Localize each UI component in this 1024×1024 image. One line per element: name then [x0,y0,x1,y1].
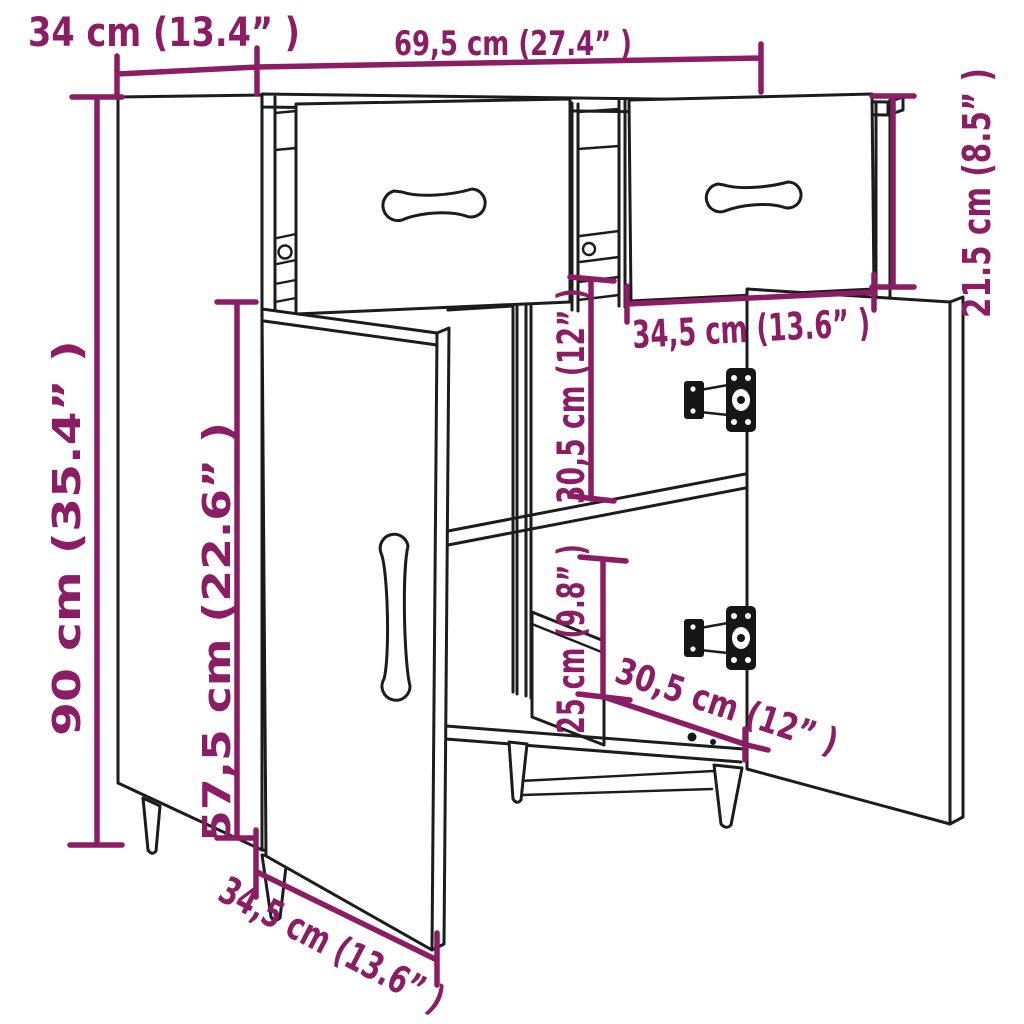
dim-label: 69,5 cm (27.4” ) [394,24,632,64]
dim-lower-compartment-height: 25 cm (9.8” ) [550,544,630,734]
furniture-dimension-diagram: 34 cm (13.4” ) 69,5 cm (27.4” ) 21.5 cm … [0,0,1024,1024]
floor-hole [710,739,716,745]
dim-label: 34 cm (13.4” ) [28,10,300,56]
left-side-panel [118,95,262,850]
right-side-edge [876,100,890,302]
dim-label: 30,5 cm (12” ) [550,288,593,504]
dim-top-width: 69,5 cm (27.4” ) [257,24,761,92]
leg-back-left [143,798,160,853]
right-door-thickness [950,297,963,824]
dim-label: 57,5 cm (22.6” ) [195,422,239,842]
slide-wheel [279,246,292,259]
left-door-face [262,309,437,950]
dim-label: 21.5 cm (8.5” ) [955,68,999,318]
dim-total-height: 90 cm (35.4” ) [45,97,122,845]
sideboard-line-drawing: 34 cm (13.4” ) 69,5 cm (27.4” ) 21.5 cm … [0,0,1024,1024]
dim-upper-compartment-height: 30,5 cm (12” ) [550,277,614,504]
slide-wheel [583,243,595,255]
dim-line [872,96,914,287]
bottom-rail [520,771,714,795]
left-door [262,309,449,950]
left-drawer [296,99,570,314]
leg-front-center [714,765,742,827]
dim-top-depth: 34 cm (13.4” ) [28,10,300,94]
floor-hole [688,733,697,742]
upper-hinge-icon [684,368,756,432]
between-drawer-hardware [578,109,619,300]
dim-label: 90 cm (35.4” ) [45,340,89,736]
lower-hinge-icon [684,606,756,670]
left-slide-hardware [275,111,296,302]
leg-back-center [509,742,527,802]
right-drawer [629,94,874,301]
dim-drawer-height: 21.5 cm (8.5” ) [872,68,999,318]
dim-label: 25 cm (9.8” ) [550,544,593,734]
